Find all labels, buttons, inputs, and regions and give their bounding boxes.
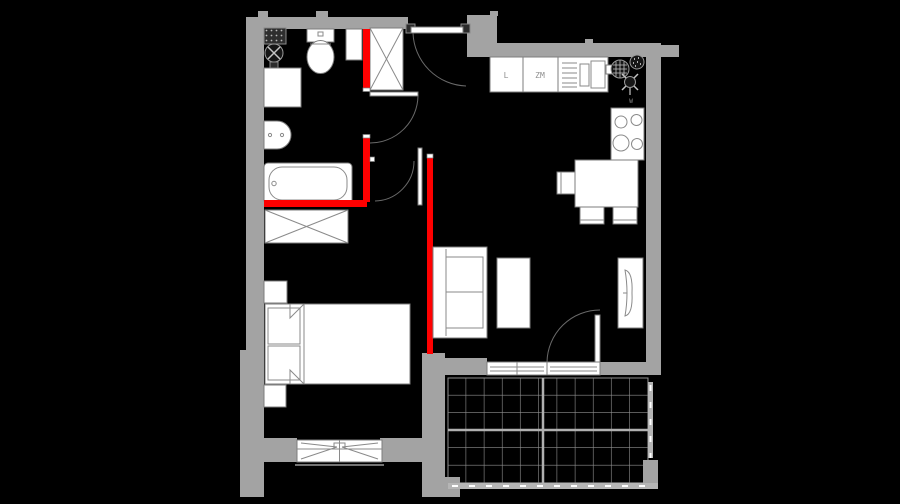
cap-3 bbox=[370, 157, 375, 162]
living-door-leaf bbox=[418, 148, 422, 205]
cap-4 bbox=[427, 154, 433, 158]
wall-entrance-pier bbox=[467, 15, 497, 57]
tv-cabinet bbox=[618, 258, 643, 328]
wardrobe bbox=[265, 210, 348, 243]
toilet bbox=[307, 29, 334, 74]
shaft-hatch bbox=[264, 28, 286, 44]
wall-left-lower bbox=[240, 350, 264, 497]
red-wall-bathroom-east-lower bbox=[363, 138, 370, 202]
chair-bottom-1 bbox=[580, 207, 604, 224]
bedroom-window bbox=[295, 440, 384, 465]
dishwasher-label: ZM bbox=[535, 71, 545, 80]
stove bbox=[611, 108, 644, 160]
chair-bottom-2 bbox=[613, 207, 637, 224]
red-wall-hall-living bbox=[427, 158, 433, 354]
entrance-door-leaf bbox=[411, 27, 463, 33]
cap-2 bbox=[363, 135, 370, 139]
vent-label: W bbox=[629, 98, 633, 105]
balcony-door-leaf bbox=[595, 315, 600, 363]
terrace-pillar-right bbox=[643, 460, 658, 483]
sofa bbox=[433, 247, 487, 338]
wall-tab-2 bbox=[316, 11, 328, 17]
wall-top-left bbox=[246, 17, 408, 29]
bed bbox=[265, 304, 410, 384]
washbasin bbox=[264, 121, 291, 149]
wall-right bbox=[646, 43, 661, 375]
kitchen-sink bbox=[558, 57, 608, 92]
floor-plan: L ZM W bbox=[0, 0, 900, 504]
bathtub bbox=[264, 163, 352, 204]
fridge-label: L bbox=[504, 71, 509, 80]
red-wall-bathroom-east-upper bbox=[363, 29, 370, 91]
wall-living-bottom-right bbox=[600, 362, 661, 375]
balcony-door-threshold bbox=[547, 362, 600, 375]
coffee-table bbox=[497, 258, 530, 328]
bathroom-door-leaf bbox=[370, 92, 418, 96]
dining-table bbox=[575, 160, 638, 207]
chair-left bbox=[557, 172, 575, 194]
nightstand-2 bbox=[264, 385, 286, 407]
wall-stub-right bbox=[661, 45, 679, 57]
wall-bump bbox=[585, 39, 593, 43]
nightstand-1 bbox=[264, 281, 287, 303]
red-wall-bathroom-south bbox=[264, 200, 367, 207]
wall-living-bottom-left bbox=[430, 358, 487, 375]
hall-closet bbox=[370, 28, 403, 90]
cap-1 bbox=[363, 88, 370, 92]
wall-bedroom-bottom-left bbox=[240, 438, 297, 462]
wall-tab-1 bbox=[258, 11, 268, 17]
wall-tab-3 bbox=[490, 11, 498, 16]
bathroom-cabinet bbox=[346, 29, 362, 60]
washing-machine bbox=[264, 68, 301, 107]
wall-top-kitchen bbox=[497, 43, 646, 57]
terrace bbox=[448, 378, 648, 483]
living-window bbox=[487, 362, 547, 375]
